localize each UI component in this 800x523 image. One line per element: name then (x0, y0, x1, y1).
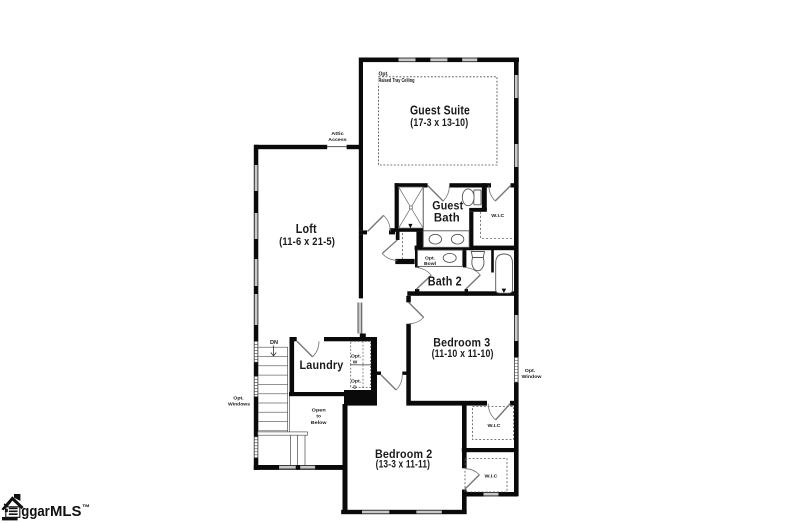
svg-text:D: D (353, 384, 357, 390)
svg-text:(13-3 x 11-11): (13-3 x 11-11) (376, 458, 431, 470)
svg-text:Open: Open (312, 407, 326, 413)
svg-text:Guest Suite: Guest Suite (410, 103, 470, 118)
svg-text:™: ™ (82, 503, 90, 512)
svg-text:Opt.: Opt. (525, 368, 536, 374)
svg-text:W: W (353, 359, 358, 365)
svg-text:Opt.: Opt. (351, 378, 361, 384)
svg-text:W.I.C: W.I.C (491, 213, 505, 218)
svg-text:Opt.: Opt. (233, 396, 244, 402)
svg-text:Opt.: Opt. (425, 255, 435, 261)
svg-text:Laundry: Laundry (300, 359, 344, 372)
svg-text:W.I.C: W.I.C (488, 423, 502, 428)
svg-text:DN: DN (270, 340, 278, 346)
svg-text:(11-6 x 21-5): (11-6 x 21-5) (279, 236, 335, 248)
svg-text:Loft: Loft (296, 221, 317, 236)
svg-text:Attic: Attic (331, 131, 344, 136)
svg-text:Bath 2: Bath 2 (428, 274, 462, 289)
svg-text:Windows: Windows (228, 401, 250, 407)
svg-text:Opt.: Opt. (351, 353, 361, 359)
svg-text:Bowl: Bowl (424, 261, 436, 267)
svg-text:Bath: Bath (434, 211, 460, 225)
svg-text:Raised Tray Ceiling: Raised Tray Ceiling (379, 78, 415, 84)
svg-text:Window: Window (522, 374, 542, 380)
svg-text:MLS: MLS (50, 504, 82, 520)
svg-text:(17-3 x 13-10): (17-3 x 13-10) (410, 117, 468, 129)
svg-text:Opt.: Opt. (379, 72, 390, 78)
svg-text:(11-10 x 11-10): (11-10 x 11-10) (432, 348, 494, 360)
svg-text:to: to (316, 414, 321, 420)
svg-text:W.I.C: W.I.C (485, 474, 499, 479)
svg-text:ggar: ggar (21, 504, 50, 520)
svg-text:Access: Access (328, 137, 347, 142)
svg-text:Below: Below (311, 420, 327, 426)
